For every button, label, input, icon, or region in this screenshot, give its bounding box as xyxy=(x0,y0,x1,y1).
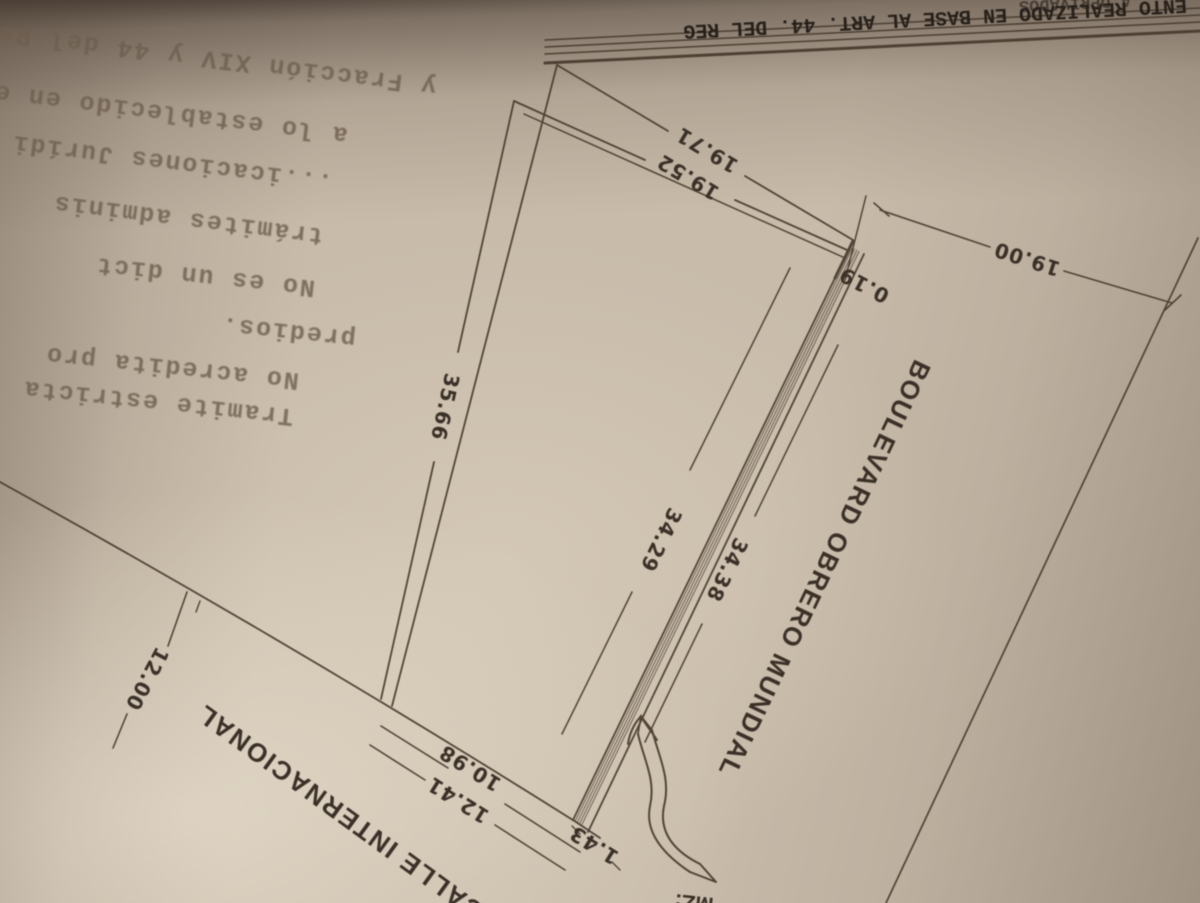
photographed-survey-document: A DERIVADOS ENTO REALIZADO EN BASE AL AR… xyxy=(0,0,1200,903)
street-boundary-line xyxy=(0,482,620,870)
survey-drawing xyxy=(0,0,1200,903)
boulevard-lines xyxy=(874,203,1198,903)
parcel-left-edge xyxy=(381,65,557,706)
annotation-arrow xyxy=(628,716,716,882)
hatched-strip xyxy=(573,196,866,832)
right-dimension-lines xyxy=(562,268,838,742)
